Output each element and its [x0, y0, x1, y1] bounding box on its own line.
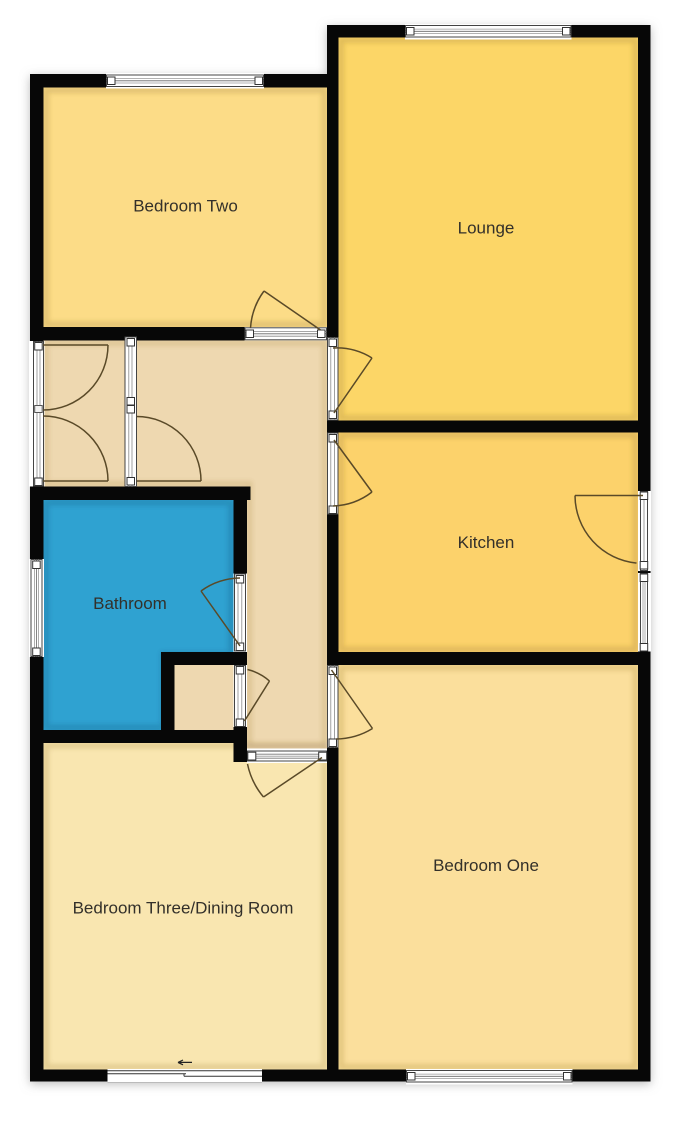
svg-text:Bedroom Three/Dining Room: Bedroom Three/Dining Room: [73, 899, 294, 918]
svg-text:Bathroom: Bathroom: [93, 594, 167, 613]
svg-text:Kitchen: Kitchen: [458, 533, 515, 552]
svg-text:Bedroom Two: Bedroom Two: [133, 197, 238, 216]
svg-text:Lounge: Lounge: [458, 219, 515, 238]
svg-text:Bedroom One: Bedroom One: [433, 856, 539, 875]
